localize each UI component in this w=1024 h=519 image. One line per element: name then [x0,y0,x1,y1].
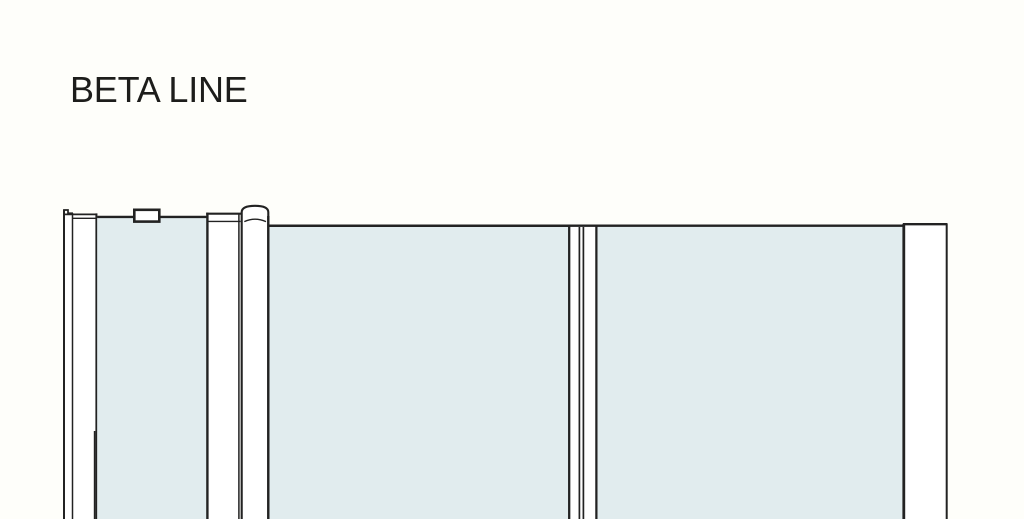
glass-panel-fixed [598,227,904,519]
page: BETA LINE [0,0,1024,519]
seal-joint [569,225,596,519]
hinge-profile-body [209,214,239,519]
wall-profile-left-body [65,214,97,519]
wall-profile-right-body [905,224,947,519]
glass-panel-side-pane [97,218,207,519]
glass-panel-door-pane [270,227,569,519]
wall-profile-left [63,210,97,519]
pivot-profile-round [242,206,269,519]
glass-panel-side [97,217,207,519]
glass-panel-door [270,227,569,519]
clamp-bracket [134,210,159,222]
glass-panel-fixed-pane [598,227,904,519]
clamp-bracket-body [134,210,159,222]
hinge-profile [206,213,241,519]
pivot-profile-round-body [242,206,269,519]
diagram-canvas [0,0,1024,519]
wall-profile-right [903,224,948,519]
